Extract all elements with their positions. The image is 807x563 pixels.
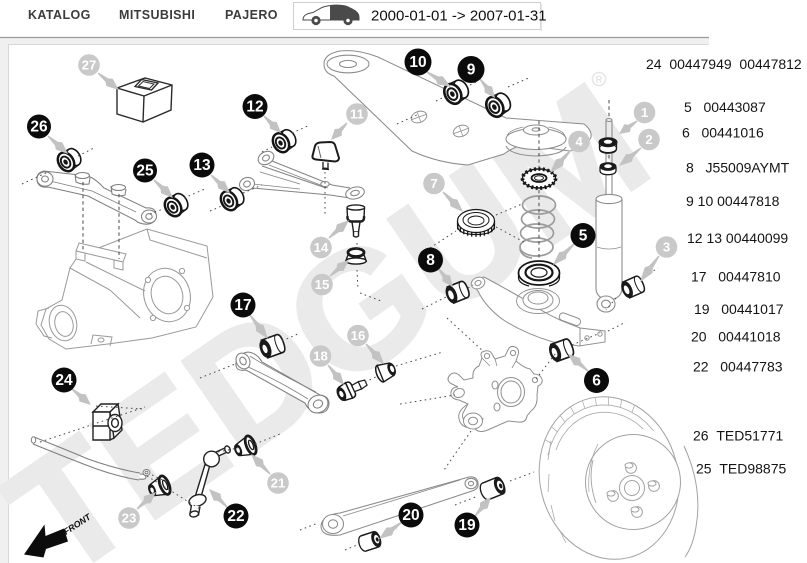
svg-text:24 00447949 00447812: 24 00447949 00447812 xyxy=(646,56,802,72)
svg-text:20 00441018: 20 00441018 xyxy=(691,328,781,344)
svg-text:13: 13 xyxy=(193,157,211,174)
svg-text:22: 22 xyxy=(227,508,244,525)
svg-text:26 TED51771: 26 TED51771 xyxy=(693,427,783,443)
svg-text:16: 16 xyxy=(351,328,366,343)
svg-text:1: 1 xyxy=(641,105,648,120)
svg-text:12: 12 xyxy=(246,99,263,116)
svg-text:2: 2 xyxy=(645,132,652,147)
svg-text:19 00441017: 19 00441017 xyxy=(694,301,784,317)
svg-text:10: 10 xyxy=(409,54,426,71)
svg-text:5: 5 xyxy=(579,228,588,245)
svg-text:14: 14 xyxy=(314,240,329,255)
svg-text:6 00441016: 6 00441016 xyxy=(682,124,764,140)
svg-text:27: 27 xyxy=(82,58,97,73)
svg-text:3: 3 xyxy=(663,240,670,255)
svg-text:20: 20 xyxy=(402,507,419,524)
svg-text:25 TED98875: 25 TED98875 xyxy=(696,460,786,476)
svg-text:5 00443087: 5 00443087 xyxy=(684,99,766,115)
svg-text:21: 21 xyxy=(271,476,286,491)
svg-text:19: 19 xyxy=(458,517,476,534)
svg-text:24: 24 xyxy=(55,372,73,389)
svg-text:12 13 00440099: 12 13 00440099 xyxy=(687,230,788,246)
svg-text:17 00447810: 17 00447810 xyxy=(691,268,781,284)
svg-text:R: R xyxy=(596,75,603,85)
svg-text:8 J55009AYMT: 8 J55009AYMT xyxy=(686,159,790,175)
svg-text:15: 15 xyxy=(315,277,330,292)
svg-text:6: 6 xyxy=(592,373,601,390)
svg-text:25: 25 xyxy=(136,163,154,180)
svg-text:KATALOG: KATALOG xyxy=(28,8,91,22)
svg-text:17: 17 xyxy=(234,297,251,314)
svg-text:9 10 00447818: 9 10 00447818 xyxy=(686,193,780,209)
svg-text:PAJERO: PAJERO xyxy=(225,8,278,22)
svg-text:26: 26 xyxy=(30,119,48,136)
svg-text:11: 11 xyxy=(350,107,364,122)
svg-text:9: 9 xyxy=(467,62,476,79)
svg-text:MITSUBISHI: MITSUBISHI xyxy=(119,8,195,22)
svg-text:18: 18 xyxy=(313,349,328,364)
svg-text:2000-01-01 -> 2007-01-31: 2000-01-01 -> 2007-01-31 xyxy=(371,8,547,25)
svg-text:4: 4 xyxy=(575,134,583,149)
svg-text:8: 8 xyxy=(426,252,435,269)
svg-text:7: 7 xyxy=(430,176,437,191)
svg-text:22 00447783: 22 00447783 xyxy=(693,358,783,374)
svg-text:23: 23 xyxy=(122,511,137,526)
